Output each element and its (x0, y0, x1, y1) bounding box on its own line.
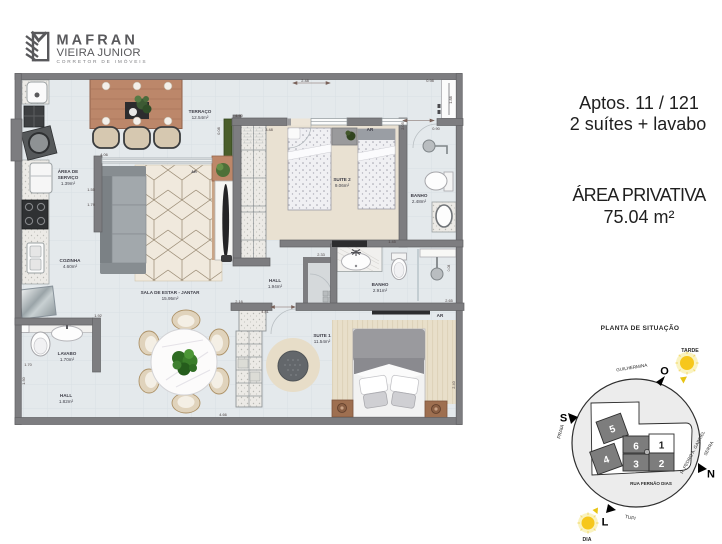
svg-text:BANHO: BANHO (372, 282, 389, 287)
svg-text:PLANTA DE SITUAÇÃO: PLANTA DE SITUAÇÃO (601, 323, 680, 332)
svg-text:4.81: 4.81 (261, 309, 269, 314)
svg-text:2.33: 2.33 (317, 252, 325, 257)
svg-text:DIA: DIA (583, 537, 592, 543)
svg-text:2: 2 (659, 459, 665, 470)
svg-text:2.16: 2.16 (235, 299, 243, 304)
svg-text:GUILHERMINA: GUILHERMINA (616, 363, 648, 373)
svg-text:1.70: 1.70 (24, 362, 32, 367)
svg-text:MAFRAN: MAFRAN (57, 32, 138, 48)
svg-text:1.55: 1.55 (87, 187, 95, 192)
svg-text:ÁREA PRIVATIVA: ÁREA PRIVATIVA (572, 185, 706, 205)
svg-text:1.50: 1.50 (21, 376, 26, 384)
svg-text:4.60m²: 4.60m² (63, 264, 78, 269)
svg-text:1.45: 1.45 (388, 239, 396, 244)
svg-text:3: 3 (633, 460, 639, 471)
svg-text:L: L (602, 517, 609, 529)
svg-text:2.40: 2.40 (451, 380, 456, 388)
svg-text:2.05: 2.05 (400, 122, 405, 130)
svg-text:PRAIA: PRAIA (556, 423, 566, 439)
svg-text:2.91m²: 2.91m² (373, 288, 388, 293)
svg-text:ÁREA DE: ÁREA DE (58, 168, 79, 174)
svg-text:AR: AR (437, 313, 444, 318)
svg-text:TUPI: TUPI (624, 514, 636, 522)
svg-text:12.54m²: 12.54m² (192, 115, 209, 120)
svg-text:0.08: 0.08 (216, 127, 221, 135)
svg-text:0.90: 0.90 (432, 126, 440, 131)
svg-text:0.08: 0.08 (447, 265, 451, 272)
svg-text:1.94m²: 1.94m² (268, 284, 283, 289)
svg-text:AR: AR (367, 127, 374, 132)
svg-text:BANHO: BANHO (411, 193, 428, 198)
svg-text:SERVIÇO: SERVIÇO (58, 175, 79, 180)
svg-text:1.88: 1.88 (448, 96, 453, 104)
svg-text:15.95m²: 15.95m² (162, 296, 179, 301)
svg-text:Aptos. 11 / 121: Aptos. 11 / 121 (579, 93, 699, 113)
svg-text:2.48: 2.48 (301, 78, 309, 83)
svg-text:1.92: 1.92 (94, 313, 102, 318)
svg-text:N: N (707, 469, 715, 481)
svg-text:75.04 m²: 75.04 m² (603, 207, 674, 227)
svg-text:SUITE 2: SUITE 2 (333, 177, 351, 182)
svg-text:SALA DE ESTAR - JANTAR: SALA DE ESTAR - JANTAR (141, 290, 201, 295)
svg-text:2 suítes + lavabo: 2 suítes + lavabo (570, 114, 707, 134)
svg-text:RUA FERNÃO DIAS: RUA FERNÃO DIAS (630, 480, 672, 486)
svg-text:HALL: HALL (60, 393, 72, 398)
svg-text:1.39m²: 1.39m² (61, 181, 76, 186)
svg-text:S: S (560, 413, 567, 425)
svg-text:9.06m²: 9.06m² (335, 183, 350, 188)
svg-text:AR: AR (191, 170, 197, 174)
svg-text:1: 1 (659, 441, 665, 452)
svg-text:6: 6 (633, 442, 639, 453)
svg-text:3.48: 3.48 (265, 127, 273, 132)
svg-text:SERRA: SERRA (703, 440, 715, 456)
svg-text:TERRAÇO: TERRAÇO (189, 109, 212, 114)
svg-text:VIEIRA JUNIOR: VIEIRA JUNIOR (57, 47, 141, 59)
svg-text:4.90: 4.90 (235, 113, 243, 118)
svg-text:11.54m²: 11.54m² (314, 339, 331, 344)
svg-text:2.65: 2.65 (445, 298, 453, 303)
svg-text:O: O (660, 366, 669, 378)
svg-text:4.66: 4.66 (219, 412, 227, 417)
svg-text:SUITE 1: SUITE 1 (313, 333, 331, 338)
svg-text:COZINHA: COZINHA (60, 258, 82, 263)
svg-text:HALL: HALL (269, 278, 281, 283)
svg-text:1.70m²: 1.70m² (60, 357, 75, 362)
svg-text:1.79: 1.79 (87, 202, 95, 207)
svg-text:LAVABO: LAVABO (58, 351, 77, 356)
svg-text:2.48m²: 2.48m² (412, 199, 427, 204)
svg-text:TARDE: TARDE (681, 348, 699, 354)
svg-text:CORRETOR DE IMÓVEIS: CORRETOR DE IMÓVEIS (57, 58, 148, 65)
svg-text:1.82m²: 1.82m² (59, 399, 74, 404)
svg-text:0.98: 0.98 (426, 78, 434, 83)
svg-text:4.06: 4.06 (100, 152, 108, 157)
